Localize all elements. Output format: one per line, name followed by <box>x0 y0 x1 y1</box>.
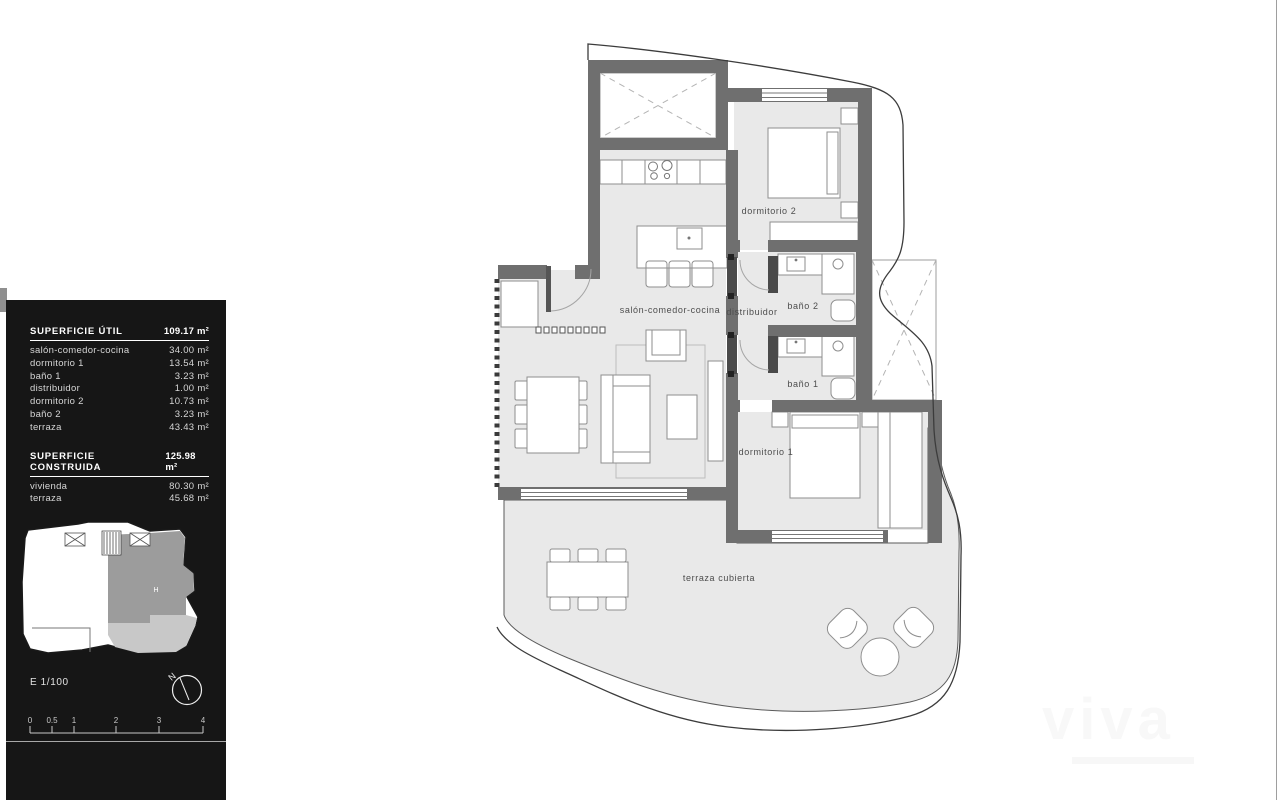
coffee-table <box>667 395 697 439</box>
superficie-util-block: SUPERFICIE ÚTIL 109.17 m² salón-comedor-… <box>30 326 209 435</box>
scale-bar-ticks <box>30 726 203 733</box>
surface-row-label: vivienda <box>30 481 67 494</box>
scale-tick-label: 1 <box>72 716 77 725</box>
label-dormitorio1: dormitorio 1 <box>739 447 794 457</box>
label-distribuidor: distribuidor <box>726 307 777 317</box>
key-plan-unit-label: H <box>153 587 158 594</box>
surface-row: dormitorio 2 10.73 m² <box>30 396 209 409</box>
surface-row: dormitorio 1 13.54 m² <box>30 358 209 371</box>
surface-row-value: 3.23 m² <box>175 371 209 384</box>
surface-panel: SUPERFICIE ÚTIL 109.17 m² salón-comedor-… <box>6 300 226 800</box>
sofa <box>601 375 650 463</box>
surface-row-value: 45.68 m² <box>169 493 209 506</box>
surface-row-label: dormitorio 2 <box>30 396 84 409</box>
surface-table: SUPERFICIE ÚTIL 109.17 m² salón-comedor-… <box>6 300 226 506</box>
surface-row: distribuidor 1.00 m² <box>30 383 209 396</box>
label-terraza: terraza cubierta <box>683 573 755 583</box>
scale-tick-label: 0 <box>28 716 33 725</box>
superficie-util-title: SUPERFICIE ÚTIL <box>30 326 123 337</box>
superficie-construida-header: SUPERFICIE CONSTRUIDA 125.98 m² <box>30 451 209 477</box>
surface-row-value: 10.73 m² <box>169 396 209 409</box>
scale-tick-label: 2 <box>114 716 119 725</box>
entry-door-leaf <box>546 266 551 312</box>
terrace-round-table <box>861 638 899 676</box>
armchair <box>646 330 686 361</box>
surface-row-label: dormitorio 1 <box>30 358 84 371</box>
label-salon: salón-comedor-cocina <box>620 305 721 315</box>
panel-divider <box>6 741 226 742</box>
scale-tick-label: 4 <box>201 716 206 725</box>
watermark-subtext <box>1072 757 1194 764</box>
surface-row-label: salón-comedor-cocina <box>30 345 129 358</box>
north-arrow-icon: N <box>164 666 208 710</box>
sink-tap <box>688 237 691 240</box>
key-plan-stairs <box>102 531 121 555</box>
terrace-dining-set <box>547 549 628 610</box>
superficie-construida-block: SUPERFICIE CONSTRUIDA 125.98 m² vivienda… <box>30 451 209 507</box>
scale-tick-label: 3 <box>157 716 162 725</box>
surface-row: baño 1 3.23 m² <box>30 371 209 384</box>
wardrobe-dormitorio1 <box>878 412 922 528</box>
image-right-border <box>1276 0 1277 800</box>
surface-row: terraza 45.68 m² <box>30 493 209 506</box>
surface-row-value: 80.30 m² <box>169 481 209 494</box>
surface-row-label: terraza <box>30 422 62 435</box>
surface-row-label: distribuidor <box>30 383 80 396</box>
surface-row: baño 2 3.23 m² <box>30 409 209 422</box>
scale-tick-label: 0.5 <box>46 716 58 725</box>
bar-stools <box>646 261 713 287</box>
surface-row: vivienda 80.30 m² <box>30 481 209 494</box>
scale-label: E 1/100 <box>30 677 69 688</box>
scale-bar: 0 0.5 1 2 3 4 <box>6 712 226 738</box>
surface-row-value: 43.43 m² <box>169 422 209 435</box>
label-bano1: baño 1 <box>787 379 818 389</box>
superficie-construida-title: SUPERFICIE CONSTRUIDA <box>30 451 165 473</box>
label-dormitorio2: dormitorio 2 <box>742 206 797 216</box>
surface-row-value: 34.00 m² <box>169 345 209 358</box>
watermark: viva <box>1042 686 1262 753</box>
tv-unit <box>708 361 723 461</box>
dining-set <box>515 377 587 453</box>
surface-row: salón-comedor-cocina 34.00 m² <box>30 345 209 358</box>
surface-row-value: 13.54 m² <box>169 358 209 371</box>
superficie-construida-total: 125.98 m² <box>165 451 209 473</box>
surface-row-label: terraza <box>30 493 62 506</box>
superficie-util-header: SUPERFICIE ÚTIL 109.17 m² <box>30 326 209 341</box>
key-plan: H <box>20 522 206 662</box>
surface-row-label: baño 2 <box>30 409 61 422</box>
surface-row-label: baño 1 <box>30 371 61 384</box>
surface-row: terraza 43.43 m² <box>30 422 209 435</box>
label-bano2: baño 2 <box>787 301 818 311</box>
radiator <box>536 327 605 333</box>
superficie-util-total: 109.17 m² <box>164 326 209 337</box>
entry-closet <box>501 281 538 327</box>
surface-row-value: 3.23 m² <box>175 409 209 422</box>
surface-row-value: 1.00 m² <box>175 383 209 396</box>
floor-plan-page: salón-comedor-cocina distribuidor baño 2… <box>0 0 1280 800</box>
